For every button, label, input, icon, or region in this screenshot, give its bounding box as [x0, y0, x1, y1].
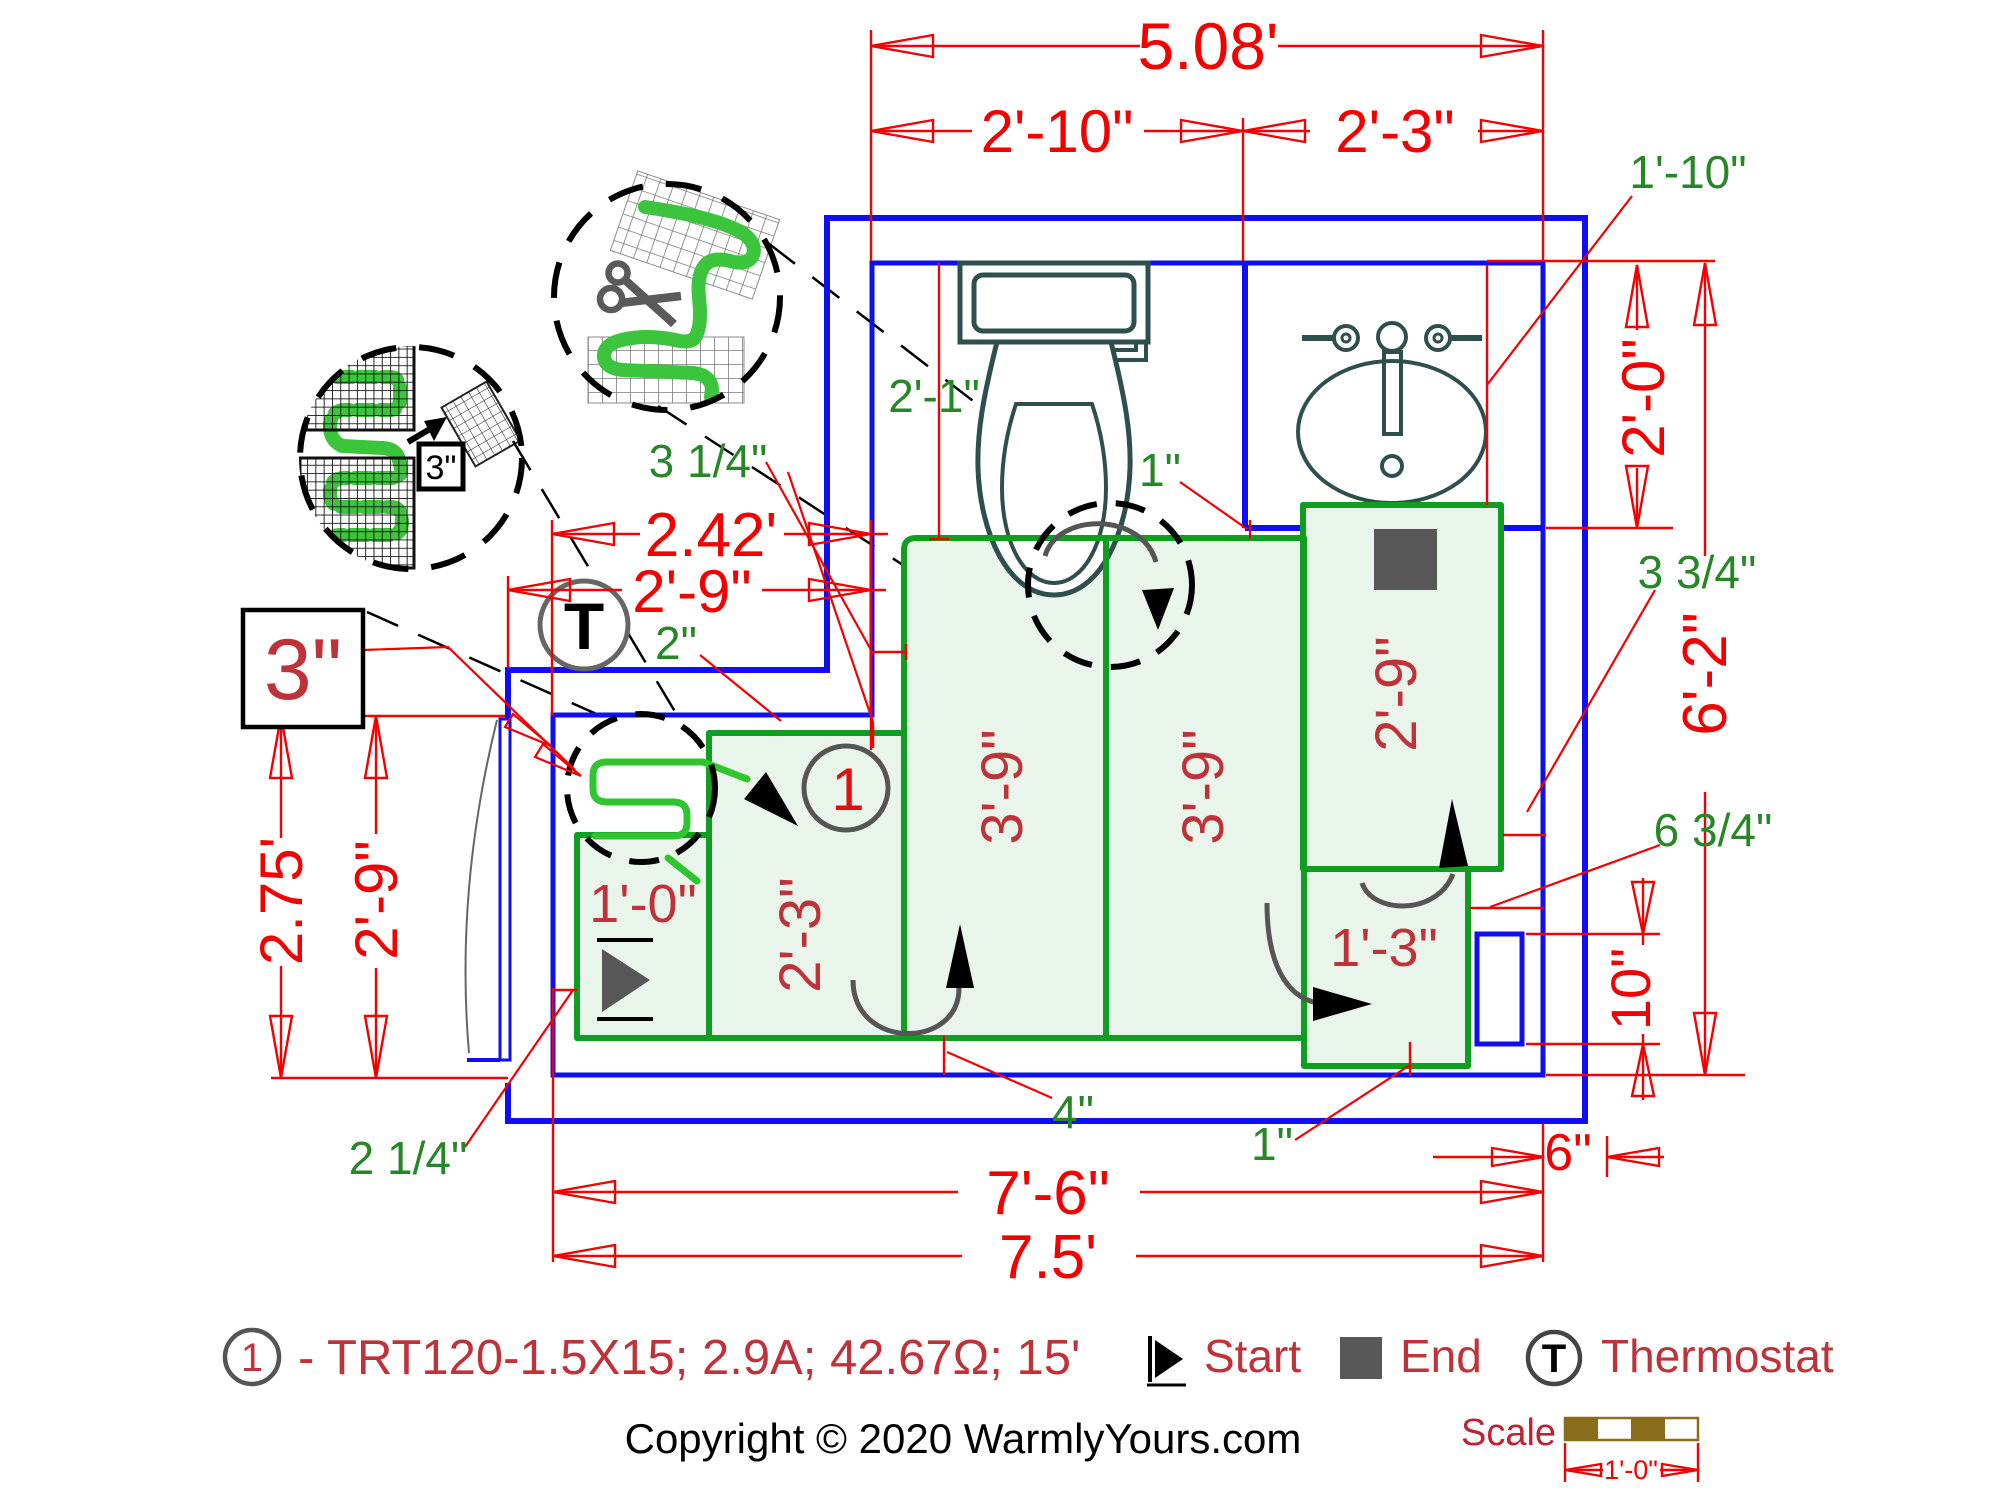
svg-text:1'-0": 1'-0" [1604, 1455, 1658, 1485]
svg-text:3 1/4": 3 1/4" [649, 435, 768, 487]
svg-text:2'-3": 2'-3" [768, 877, 833, 993]
svg-text:3": 3" [426, 449, 457, 487]
svg-text:2'-9": 2'-9" [632, 558, 751, 625]
svg-text:1'-0": 1'-0" [589, 874, 697, 934]
svg-text:2'-9": 2'-9" [1364, 636, 1429, 752]
svg-text:6": 6" [1544, 1124, 1591, 1182]
svg-text:End: End [1400, 1330, 1482, 1382]
svg-text:1: 1 [831, 756, 864, 823]
svg-text:6 3/4": 6 3/4" [1654, 804, 1773, 856]
svg-text:2'-10": 2'-10" [981, 98, 1134, 165]
svg-text:3": 3" [264, 622, 342, 718]
svg-text:Scale: Scale [1461, 1412, 1556, 1454]
svg-text:2.75': 2.75' [248, 837, 315, 965]
svg-text:Copyright © 2020 WarmlyYours.c: Copyright © 2020 WarmlyYours.com [625, 1415, 1302, 1462]
svg-text:3'-9": 3'-9" [1171, 729, 1236, 845]
svg-text:1": 1" [1139, 444, 1181, 496]
svg-text:2'-9": 2'-9" [343, 840, 410, 959]
svg-text:3 3/4": 3 3/4" [1638, 546, 1757, 598]
svg-text:Thermostat: Thermostat [1601, 1330, 1834, 1382]
svg-text:2 1/4": 2 1/4" [349, 1132, 468, 1184]
svg-text:2'-0": 2'-0" [1610, 338, 1677, 457]
svg-text:4": 4" [1052, 1086, 1094, 1138]
svg-text:T: T [1542, 1337, 1566, 1381]
svg-text:2'-3": 2'-3" [1335, 98, 1454, 165]
svg-text:2": 2" [655, 617, 697, 669]
svg-text:1": 1" [1251, 1118, 1293, 1170]
svg-text:6'-2": 6'-2" [1671, 612, 1740, 735]
svg-text:7.5': 7.5' [999, 1223, 1097, 1292]
svg-text:1: 1 [241, 1336, 263, 1380]
svg-text:1'-3": 1'-3" [1330, 918, 1438, 978]
svg-text:Start: Start [1204, 1330, 1301, 1382]
svg-text:10": 10" [1599, 948, 1662, 1030]
svg-text:7'-6": 7'-6" [986, 1159, 1109, 1228]
svg-text:1'-10": 1'-10" [1629, 146, 1746, 198]
svg-text:- TRT120-1.5X15; 2.9A; 42.67Ω;: - TRT120-1.5X15; 2.9A; 42.67Ω; 15' [298, 1331, 1080, 1385]
svg-text:5.08': 5.08' [1137, 9, 1278, 83]
svg-text:2'-1": 2'-1" [888, 370, 980, 422]
svg-text:3'-9": 3'-9" [970, 729, 1035, 845]
